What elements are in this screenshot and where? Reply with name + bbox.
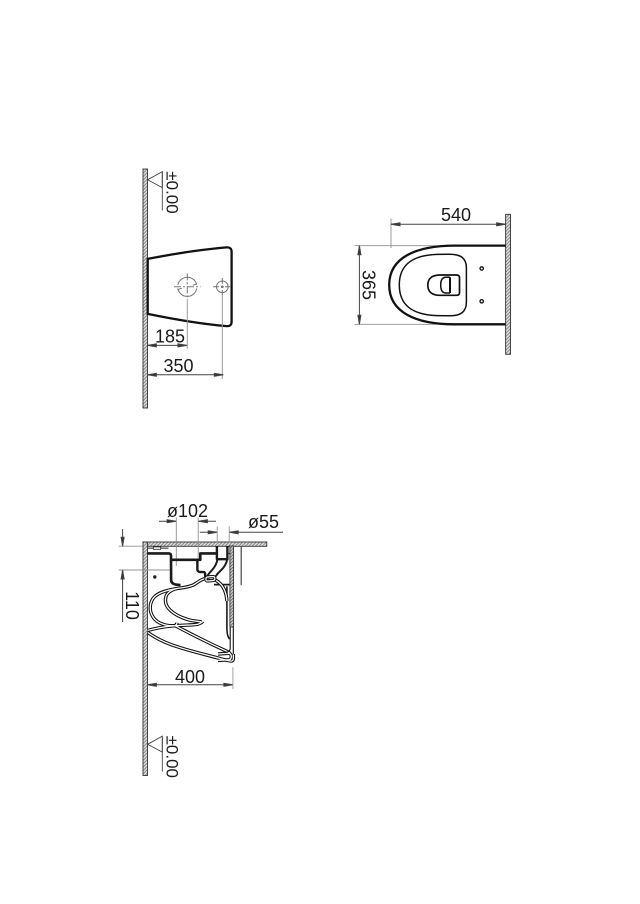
svg-text:ø55: ø55 xyxy=(248,512,279,532)
svg-text:ø102: ø102 xyxy=(167,501,208,521)
svg-text:±0.00: ±0.00 xyxy=(162,171,181,213)
svg-text:±0.00: ±0.00 xyxy=(162,736,181,778)
svg-text:350: 350 xyxy=(163,356,193,376)
svg-text:110: 110 xyxy=(122,591,142,620)
svg-text:400: 400 xyxy=(175,667,205,687)
svg-text:540: 540 xyxy=(441,205,471,225)
svg-text:365: 365 xyxy=(358,270,378,300)
svg-text:185: 185 xyxy=(155,327,185,347)
